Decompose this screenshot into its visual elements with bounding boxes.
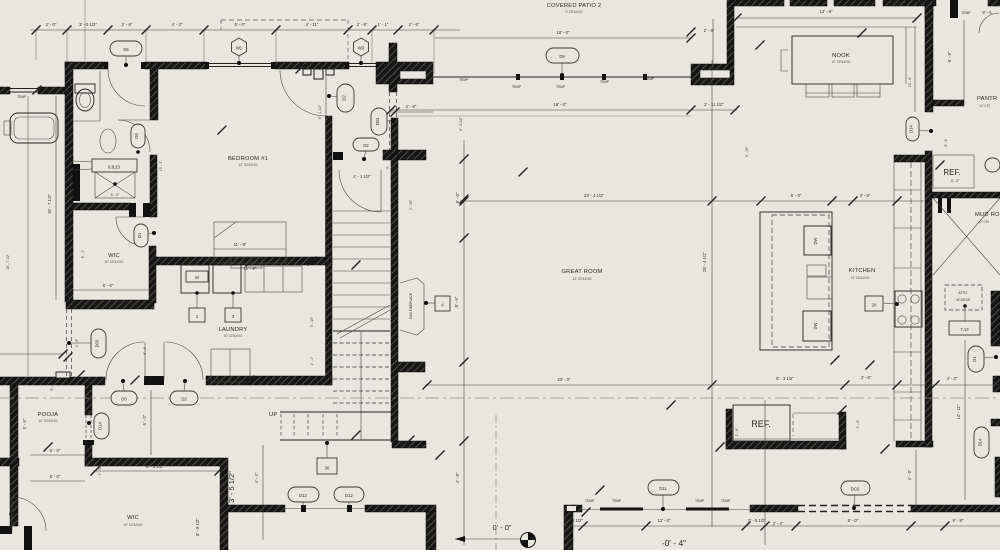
svg-text:4' - 0": 4' - 0" [75, 338, 79, 347]
svg-text:13' - 6": 13' - 6" [820, 9, 834, 14]
svg-text:ATTIC: ATTIC [958, 291, 968, 295]
svg-text:6' - 8": 6' - 8" [953, 518, 964, 523]
svg-text:2' - 1": 2' - 1" [310, 356, 314, 365]
svg-text:2' - 6": 2' - 6" [856, 419, 860, 428]
svg-text:15' - 7 1/2": 15' - 7 1/2" [47, 194, 52, 214]
svg-text:10' - 9": 10' - 9" [908, 76, 912, 87]
svg-text:5' - 0": 5' - 0" [235, 22, 246, 27]
svg-text:D0: D0 [121, 397, 127, 402]
svg-text:1' - 1": 1' - 1" [378, 22, 389, 27]
svg-text:23' - 4 1/2": 23' - 4 1/2" [584, 193, 604, 198]
svg-text:D1: D1 [972, 356, 977, 362]
svg-text:3' - 10": 3' - 10" [409, 199, 413, 210]
svg-text:12' CEILING: 12' CEILING [851, 276, 870, 280]
svg-text:TEMP: TEMP [600, 80, 610, 84]
svg-text:2' - 6": 2' - 6" [357, 22, 368, 27]
svg-text:DO2: DO2 [851, 487, 860, 492]
svg-text:5' - 0": 5' - 0" [455, 192, 460, 203]
svg-text:6' - 1": 6' - 1" [81, 249, 85, 258]
svg-text:-0' - 4": -0' - 4" [662, 538, 686, 548]
svg-text:TEMP: TEMP [585, 499, 595, 503]
svg-text:0' - 6 1/2": 0' - 6 1/2" [748, 518, 766, 523]
svg-text:GAS FIREPLACE: GAS FIREPLACE [409, 292, 413, 319]
svg-text:9' - 5: 9' - 5 [982, 10, 992, 15]
svg-text:5' - 0": 5' - 0" [111, 193, 120, 197]
svg-text:8' - 9 1/2": 8' - 9 1/2" [195, 518, 200, 536]
svg-text:4' - 2": 4' - 2" [947, 376, 958, 381]
svg-text:2' - 11 1/2": 2' - 11 1/2" [704, 102, 724, 107]
svg-text:D14: D14 [98, 421, 103, 429]
svg-text:D12: D12 [345, 493, 353, 498]
svg-text:0' - 6 1/2": 0' - 6 1/2" [565, 518, 583, 523]
svg-text:5' - 0": 5' - 0" [142, 414, 147, 425]
svg-text:0' CEILING: 0' CEILING [565, 10, 582, 14]
svg-text:4' - 3": 4' - 3" [172, 22, 183, 27]
svg-text:2' - 6": 2' - 6" [122, 22, 133, 27]
svg-text:4' - 9": 4' - 9" [455, 472, 460, 483]
svg-text:D2: D2 [181, 397, 187, 402]
svg-text:POOJA: POOJA [38, 412, 59, 418]
svg-text:18' - 0": 18' - 0" [557, 30, 571, 35]
svg-text:D14: D14 [978, 438, 983, 446]
svg-text:TEMP: TEMP [721, 499, 731, 503]
svg-text:TEMP: TEMP [695, 499, 705, 503]
svg-text:TEMP: TEMP [556, 85, 566, 89]
svg-text:COVERED PATIO 2: COVERED PATIO 2 [547, 3, 602, 9]
svg-text:D03: D03 [375, 117, 380, 125]
svg-text:20: 20 [872, 303, 877, 308]
svg-text:4' - 4": 4' - 4" [254, 472, 259, 483]
svg-text:TEMP: TEMP [961, 11, 971, 15]
svg-text:WIC: WIC [127, 515, 139, 521]
svg-text:GREAT ROOM: GREAT ROOM [561, 269, 602, 275]
svg-text:5' - 0": 5' - 0" [50, 448, 61, 453]
svg-text:D6: D6 [123, 47, 129, 52]
svg-text:4' - 6": 4' - 6" [860, 193, 871, 198]
svg-text:12' CEI: 12' CEI [978, 220, 989, 224]
svg-text:11' - 9": 11' - 9" [234, 242, 247, 247]
svg-text:10' CEILING: 10' CEILING [39, 419, 58, 423]
svg-text:2' - 6": 2' - 6" [409, 22, 420, 27]
svg-text:5' - 6": 5' - 6" [103, 283, 114, 288]
svg-text:TEMP: TEMP [612, 499, 622, 503]
svg-text:REF.: REF. [943, 168, 960, 177]
svg-text:LAUNDRY: LAUNDRY [219, 327, 248, 333]
svg-text:9' - 9": 9' - 9" [947, 51, 952, 62]
svg-text:6' - 1 1/2": 6' - 1 1/2" [318, 104, 322, 119]
svg-text:23' - 0": 23' - 0" [558, 377, 572, 382]
svg-text:D1: D1 [137, 232, 142, 238]
svg-text:18' - 0": 18' - 0" [554, 102, 568, 107]
svg-text:W3: W3 [358, 46, 365, 51]
svg-text:D2: D2 [363, 143, 369, 148]
svg-text:3' - 0 1/2": 3' - 0 1/2" [79, 22, 97, 27]
svg-text:WIC: WIC [108, 253, 120, 259]
svg-text:D14: D14 [909, 124, 914, 132]
svg-text:8' - 6": 8' - 6" [454, 296, 459, 307]
svg-text:TEMP: TEMP [459, 78, 469, 82]
svg-text:16' - 7 1/2": 16' - 7 1/2" [6, 253, 10, 270]
svg-text:D11: D11 [659, 486, 667, 491]
svg-text:UP: UP [269, 412, 277, 418]
svg-text:3' - 10": 3' - 10" [310, 316, 314, 327]
svg-text:11' - 9": 11' - 9" [244, 266, 257, 271]
svg-text:D00: D00 [95, 339, 100, 347]
svg-text:4' - 11": 4' - 11" [306, 22, 319, 27]
svg-text:5' - 0": 5' - 0" [50, 474, 61, 479]
svg-text:0' - 4 1/2": 0' - 4 1/2" [50, 376, 54, 391]
svg-text:2' - 4": 2' - 4" [773, 521, 784, 526]
svg-text:D12: D12 [299, 493, 307, 498]
svg-text:TEMP: TEMP [645, 77, 655, 81]
svg-text:D9: D9 [559, 54, 565, 59]
svg-text:3' - 5 1/2": 3' - 5 1/2" [227, 471, 236, 503]
svg-text:12' CEILING: 12' CEILING [573, 277, 592, 281]
svg-text:13' - 1": 13' - 1" [159, 160, 163, 171]
svg-text:8' - 8 1/2": 8' - 8 1/2" [146, 464, 164, 469]
svg-text:ACCESS: ACCESS [956, 298, 970, 302]
svg-text:8' - 3 1/2": 8' - 3 1/2" [776, 376, 794, 381]
svg-text:3' - 2": 3' - 2" [951, 179, 960, 183]
svg-text:PANTR: PANTR [977, 96, 997, 102]
svg-text:10' CEILING: 10' CEILING [124, 523, 143, 527]
svg-text:6,8,23: 6,8,23 [108, 165, 120, 170]
svg-text:14' - 11": 14' - 11" [956, 404, 961, 420]
svg-text:5' - 6": 5' - 6" [22, 418, 27, 429]
svg-text:12' - 0": 12' - 0" [658, 518, 672, 523]
svg-text:25' - 4 1/2": 25' - 4 1/2" [702, 252, 707, 272]
svg-text:10' CEI: 10' CEI [979, 104, 990, 108]
svg-text:2' - 6": 2' - 6" [735, 427, 739, 436]
svg-text:MUD RO: MUD RO [975, 212, 1000, 218]
svg-text:TEMP: TEMP [17, 95, 27, 99]
svg-text:3' - 6": 3' - 6" [861, 375, 872, 380]
svg-text:D2: D2 [342, 95, 347, 101]
svg-text:4' - 1 1/2": 4' - 1 1/2" [353, 174, 371, 179]
svg-text:D8: D8 [134, 133, 139, 139]
svg-text:9' - 10": 9' - 10" [745, 146, 749, 157]
svg-text:0' - 5: 0' - 5 [386, 166, 393, 170]
svg-text:4' - 9": 4' - 9" [907, 469, 912, 480]
svg-text:8' - 0": 8' - 0" [848, 518, 859, 523]
svg-text:0' - 6: 0' - 6 [944, 139, 948, 146]
svg-text:2' - 6": 2' - 6" [406, 104, 417, 109]
svg-text:REF.: REF. [751, 419, 771, 429]
svg-text:10' CEILING: 10' CEILING [224, 334, 243, 338]
svg-text:10' CEILING: 10' CEILING [832, 60, 851, 64]
svg-text:KITCHEN: KITCHEN [849, 268, 876, 274]
svg-text:0' - 5: 0' - 5 [143, 347, 147, 354]
svg-text:TEMP: TEMP [512, 85, 522, 89]
svg-text:2' - 0": 2' - 0" [46, 22, 57, 27]
svg-text:NOOK: NOOK [832, 53, 850, 59]
svg-text:DW: DW [813, 237, 818, 244]
svg-text:W1: W1 [236, 46, 243, 51]
svg-text:BEDROOM #1: BEDROOM #1 [228, 156, 268, 162]
svg-text:DW: DW [813, 322, 818, 329]
svg-text:5' - 0": 5' - 0" [791, 193, 802, 198]
svg-text:5' - 0 1/2": 5' - 0 1/2" [459, 116, 463, 131]
svg-text:12' CEILING: 12' CEILING [239, 163, 258, 167]
svg-text:W: W [195, 275, 199, 280]
svg-text:7,13: 7,13 [960, 327, 969, 332]
svg-text:10' CEILING: 10' CEILING [105, 260, 124, 264]
svg-text:30: 30 [325, 466, 330, 471]
svg-text:1' - 10": 1' - 10" [98, 464, 102, 475]
svg-text:0' - 0": 0' - 0" [492, 523, 511, 532]
